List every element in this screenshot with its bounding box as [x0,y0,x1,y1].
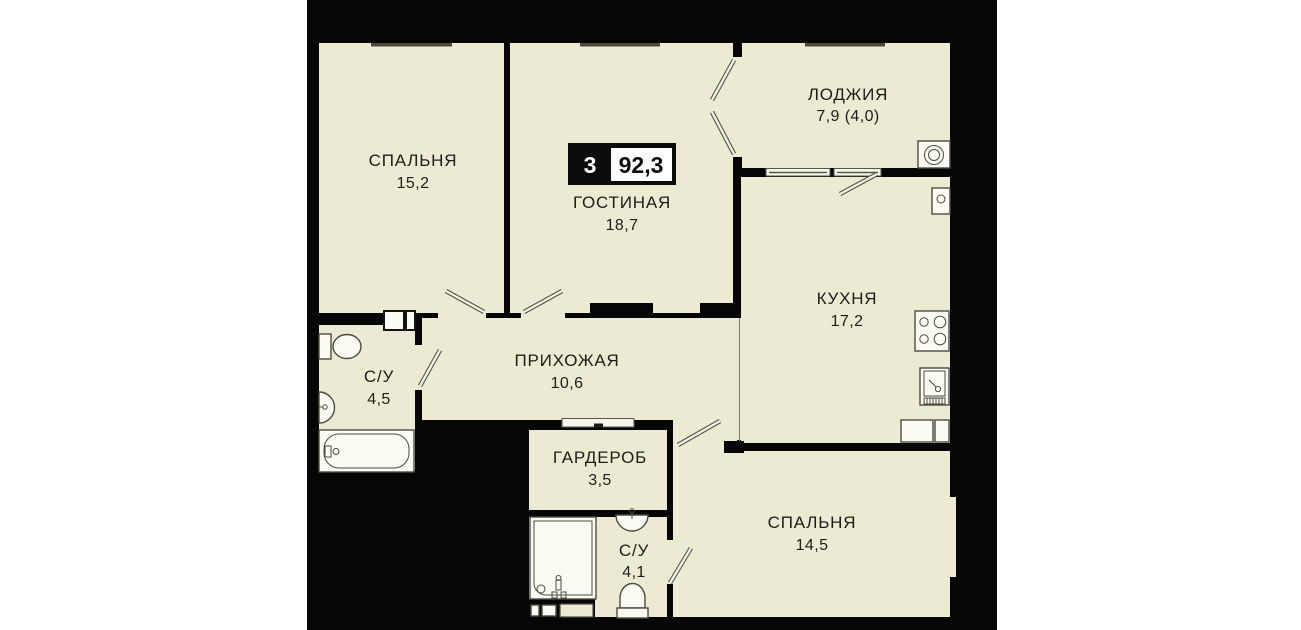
floor-plan-svg: СПАЛЬНЯ 15,2 ГОСТИНАЯ 18,7 ЛОДЖИЯ 7,9 (4… [0,0,1301,630]
wall-living-south-east [700,303,733,318]
apartment-badge: 3 92,3 [568,143,676,185]
room-label-loggia: ЛОДЖИЯ [808,85,889,104]
window-icon [805,43,885,47]
room-label-wardrobe: ГАРДЕРОБ [553,448,647,467]
room-label-bath2: С/У [619,541,649,560]
vent-box-icon [932,188,950,214]
room-area-kitchen: 17,2 [831,313,864,330]
bedroom1-door-opening [438,311,486,320]
hallway-corridor-floor [673,318,737,441]
vent-box-icon [384,311,415,330]
sliding-door-icon [562,419,634,428]
room-label-bedroom1: СПАЛЬНЯ [369,151,458,170]
room-label-living: ГОСТИНАЯ [573,193,671,212]
bedroom2-wall-notch [950,497,956,577]
wall-bedroom2-top-stub [724,441,744,453]
washing-machine-icon [918,141,950,168]
badge-rooms-count: 3 [584,152,597,178]
room-area-loggia: 7,9 (4,0) [816,108,879,125]
toilet-icon [319,334,361,359]
room-area-bedroom1: 15,2 [397,175,430,192]
wall-living-south-thick [590,303,653,318]
room-label-kitchen: КУХНЯ [817,289,878,308]
room-area-living: 18,7 [606,217,639,234]
room-area-wardrobe: 3,5 [588,472,611,489]
kitchen-open-passage [733,318,743,440]
room-area-bath1: 4,5 [367,391,390,408]
room-kitchen-floor [741,177,950,443]
loggia-door-opening [731,57,744,157]
stove-icon [915,311,949,351]
room-label-bedroom2: СПАЛЬНЯ [768,513,857,532]
kitchen-sink-icon [920,368,949,405]
room-area-bath2: 4,1 [622,564,645,581]
room-area-hallway: 10,6 [551,375,584,392]
room-bedroom2-floor [673,451,950,617]
room-label-hallway: ПРИХОЖАЯ [514,351,619,370]
window-icon [580,43,660,47]
window-icon [371,43,452,47]
room-area-bedroom2: 14,5 [796,537,829,554]
badge-total-area: 92,3 [619,152,664,178]
floor-plan-page: СПАЛЬНЯ 15,2 ГОСТИНАЯ 18,7 ЛОДЖИЯ 7,9 (4… [0,0,1301,630]
room-label-bath1: С/У [364,367,394,386]
shower-icon [530,517,596,599]
cabinet-icon [901,420,949,442]
room-wardrobe-floor [529,430,667,510]
bathtub-icon [319,430,414,472]
